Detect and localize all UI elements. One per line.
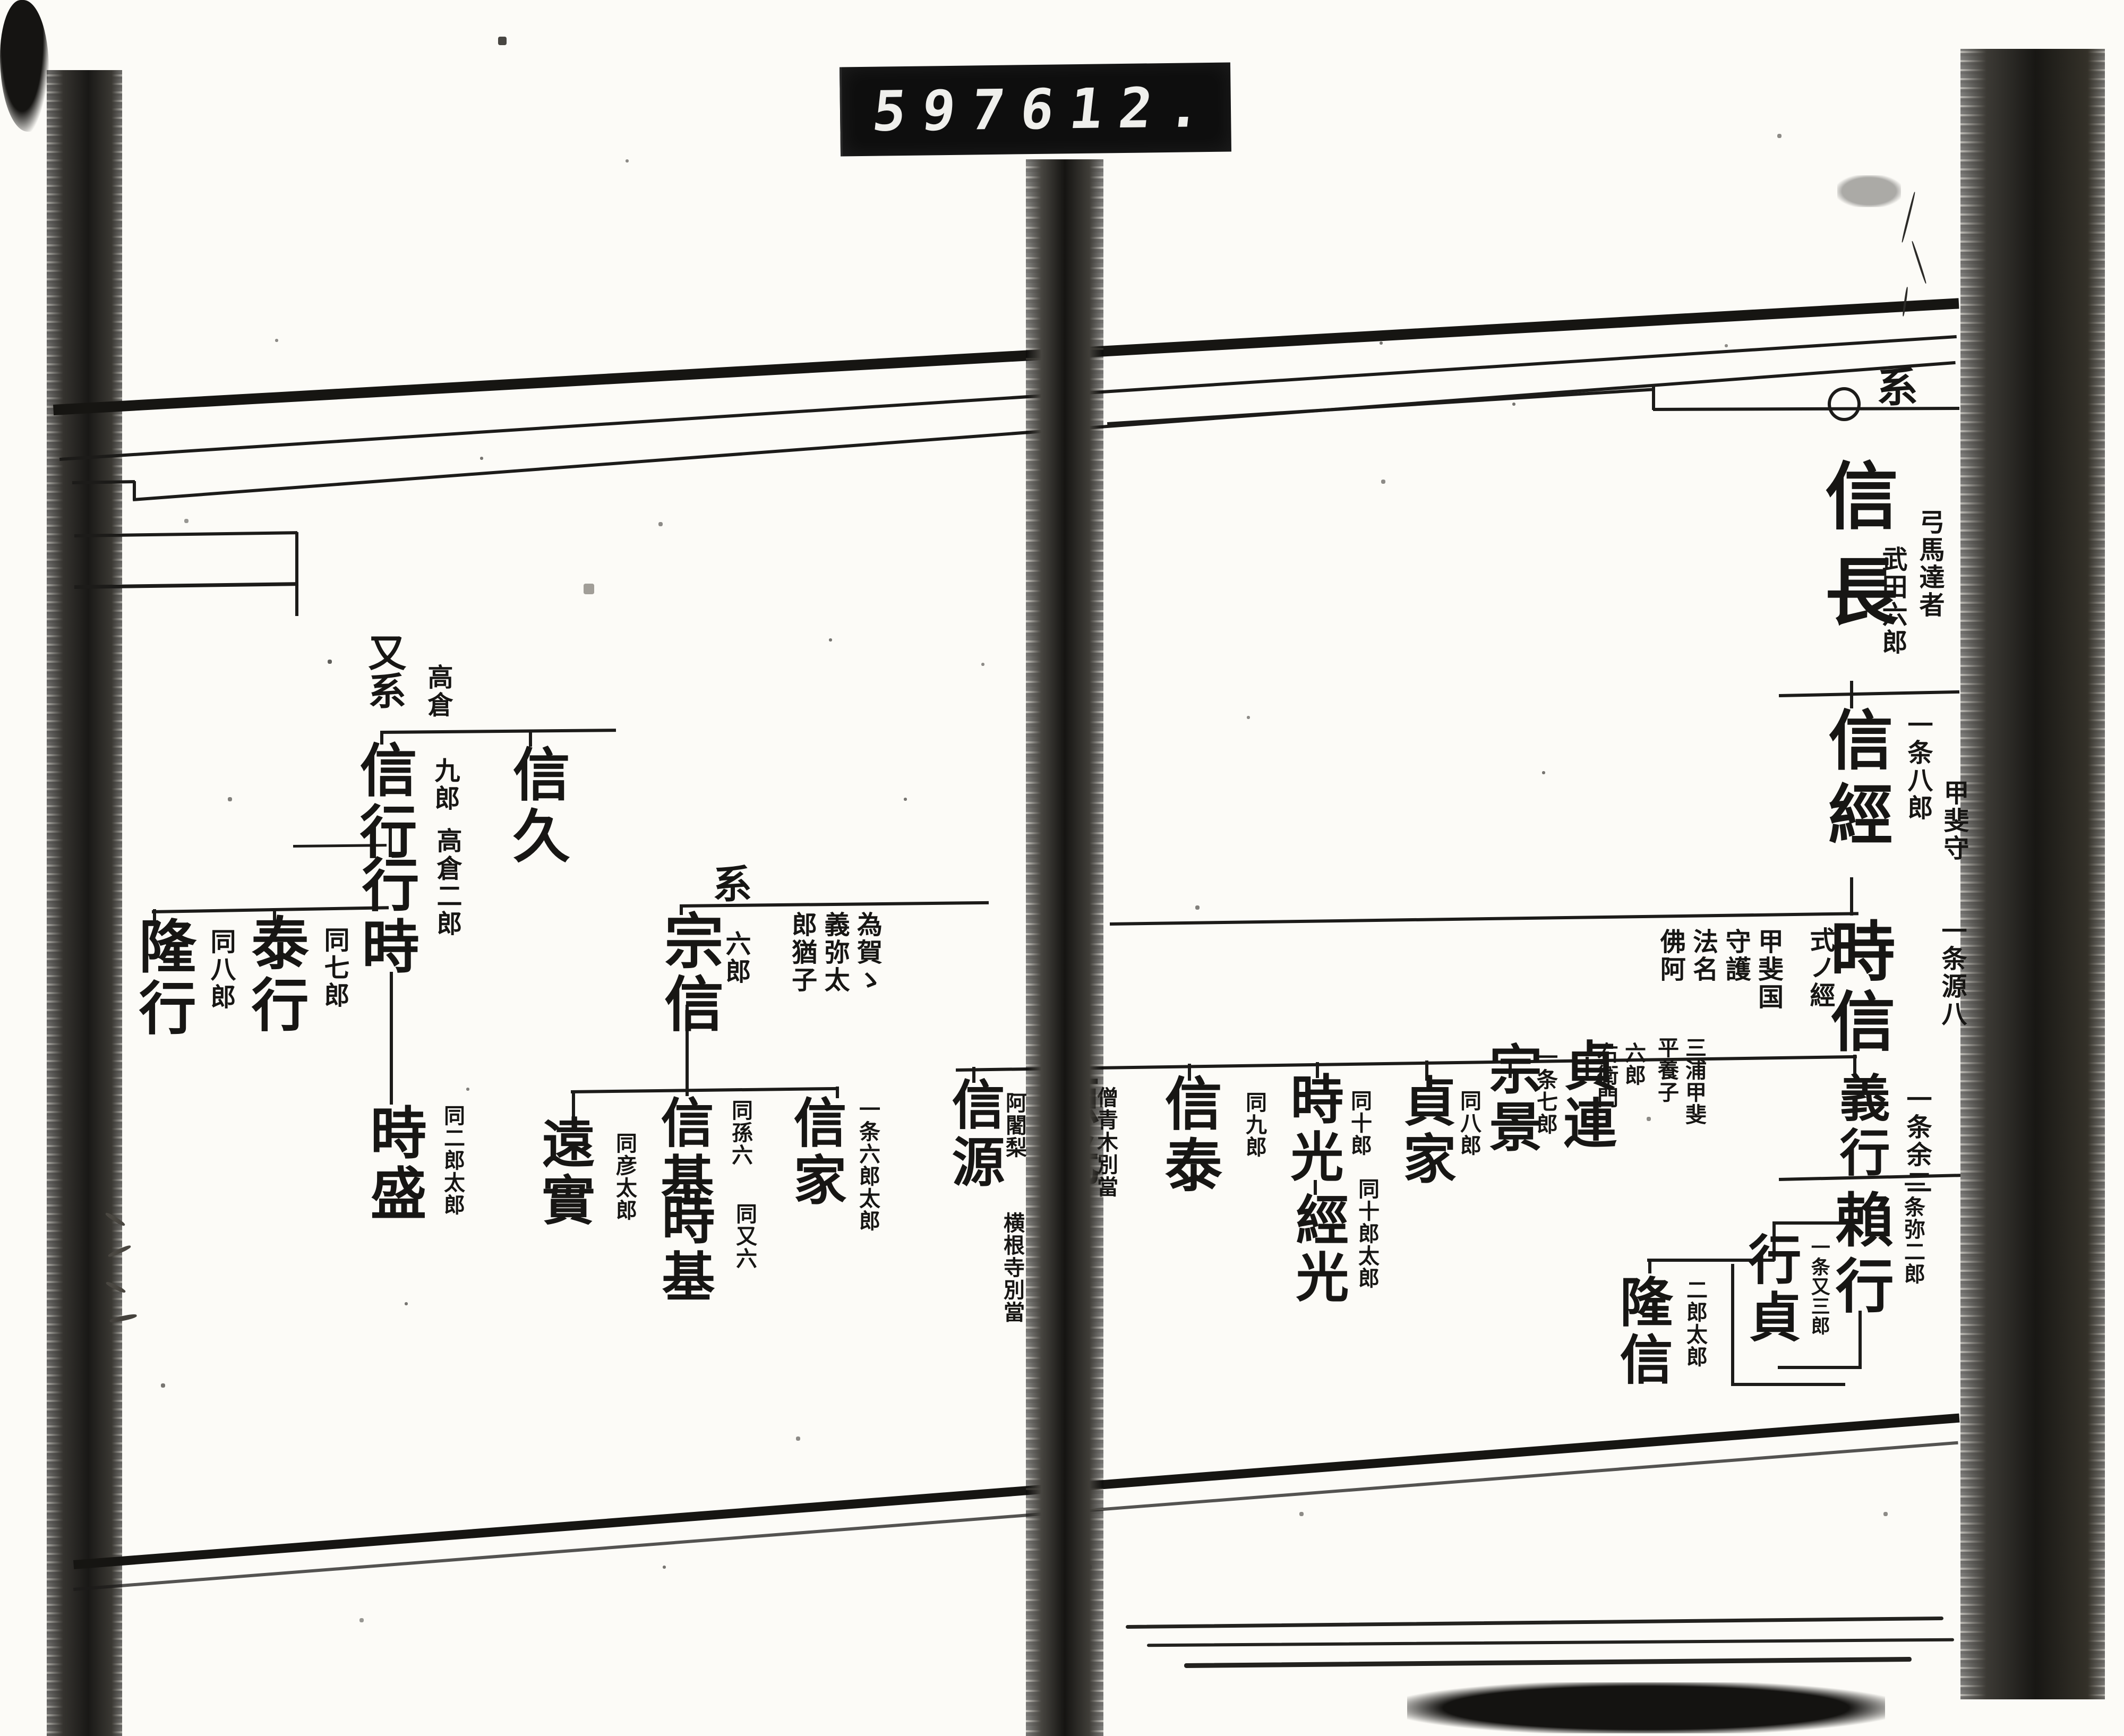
page-edge-streak [1126,1617,1943,1629]
annotation-tokinobu-genpachi: 一条源八 [1935,918,1967,1028]
person-name-yasuyuki: 泰行 [244,913,306,1037]
annotation-takanobu: 二郎太郎 [1681,1279,1709,1368]
annotation-tsunemitsu: 同十郎太郎 [1353,1178,1381,1289]
right-step-line-step [1652,387,1655,410]
book-left-edge-shadow [47,70,122,1736]
person-name-yukisada: 行貞 [1742,1232,1799,1347]
annotation-shingen-ajari: 阿闍梨 [1000,1092,1028,1159]
person-name-nobuhisa: 信久 [506,745,568,868]
annotation-sadatsura-far: 三浦甲斐 平養子 [1650,1037,1708,1126]
person-name-munenobu: 宗信 [656,910,721,1036]
frame-hook-lower [1731,1383,1845,1386]
right-step-line-upper [1107,388,1654,425]
frame-hook-vertical [1731,1264,1734,1385]
person-name-tokimoto: 時基 [655,1192,713,1306]
microfilm-scan: 597 612. 系 信長 弓馬達者 武田六郎 信經 一条八郎 時信 甲斐守 一… [0,0,2124,1736]
bottom-frame-line [73,1414,1960,1569]
page-gutter-shadow [1026,159,1103,1736]
left-step-box-right [295,532,298,585]
lineage-marker-kei2: 系 [707,863,750,903]
left-step-box-tail [295,583,298,616]
faint-smudge [1837,175,1901,207]
annotation-nobuyasu: 同九郎 [1240,1091,1268,1158]
annotation-nobuyuki: 九郎 [428,757,460,813]
annotation-yukitoki: 高倉二郎 [430,827,463,938]
person-name-nobutsune: 信經 [1820,706,1890,855]
annotation-nobutsune: 一条八郎 [1901,712,1933,822]
bottom-frame-echo-line [73,1441,1958,1591]
book-right-edge-shadow [1960,49,2105,1699]
annotation-yasuyuki: 同七郎 [318,927,350,1010]
person-name-takanobu: 隆信 [1613,1275,1671,1389]
person-name-nobuyasu: 信泰 [1158,1074,1220,1197]
annotation-sadatsura-near: 六郎 右衛門 [1594,1042,1647,1109]
takanobu-hanger [1648,1259,1651,1273]
generation-separator-2 [1110,912,1858,926]
annotation-nobumoto: 同孫六 [726,1099,754,1166]
counter-right-digits: 612. [1017,75,1221,142]
ruled-line-3-left [72,480,135,484]
person-name-shingen: 信源 [945,1077,1003,1192]
person-name-tsunemitsu: 經光 [1289,1192,1347,1307]
hanger-tozane [572,1090,575,1117]
gutter-ink-blot [0,0,49,132]
generation-separator-1 [1779,690,1959,697]
person-name-tozane: 遠實 [535,1115,593,1230]
annotation-tokinobu-left-block: 甲斐国 守護 法名 佛阿 [1639,928,1784,1011]
lineage-marker-matakei: 又系 [363,633,405,709]
annotation-nobuie: 一条六郎太郎 [854,1098,881,1232]
bottom-right-ink-blob [1407,1682,1885,1733]
annotation-shingen-yokonedera: 横根寺別當 [998,1212,1026,1323]
annotation-munenobu-rokuro: 六郎 [719,930,751,986]
connector-yukitoki-tokimori [390,972,393,1105]
page-edge-streak [1147,1638,1954,1647]
right-step-line-lower [1653,407,1959,411]
takakura-children-line [380,729,616,734]
annotation-munenobu-adoption: 為賀ゝ 義弥太 郎猶子 [767,911,883,994]
annotation-nobunaga-inner: 武田六郎 [1875,546,1908,656]
person-name-yukitoki: 行時 [355,855,417,978]
annotation-sadaie: 同八郎 [1455,1090,1483,1157]
annotation-tokinobu-kainokami: 甲斐守 [1937,780,1969,862]
annotation-yoriyuki: 一条弥二郎 [1899,1174,1926,1285]
annotation-tozane: 同彦太郎 [611,1132,638,1221]
crease-mark [1911,241,1927,284]
person-name-nobuie: 信家 [787,1095,844,1210]
annotation-tokimori: 同二郎太郎 [439,1105,466,1216]
scan-speckle-noise [0,0,1,1]
annotation-takayuki: 同八郎 [204,928,236,1011]
person-name-yoshiyuki: 義行 [1833,1072,1888,1181]
microfilm-frame-counter: 597 612. [840,63,1231,157]
origin-circle-icon [1828,387,1861,421]
connector-nobutsune-tokinobu [1850,877,1853,916]
person-name-tokimori: 時盛 [363,1104,424,1225]
crease-mark [1901,192,1916,243]
munenobu-children-line [571,1087,839,1093]
annotation-tokimoto: 同又六 [731,1203,758,1270]
person-name-nobuyuki: 信行 [353,740,415,863]
annotation-tokimitsu: 同十郎 [1346,1090,1373,1157]
annotation-munekage: 一条七郎 [1531,1046,1559,1135]
counter-left-digits: 597 [869,77,1024,144]
annotation-tokinobu-left-first: 式ノ經 [1803,927,1836,1010]
lineage-continuation-marker: 系 [1871,365,1916,407]
page-edge-streak [1184,1657,1912,1668]
person-name-tokimitsu: 時光 [1284,1072,1341,1186]
person-name-takayuki: 隆行 [132,917,194,1040]
annotation-yukisada: 一条又三郎 [1806,1237,1831,1336]
annotation-nobunaga-outer: 弓馬達者 [1913,509,1945,619]
person-name-sadaie: 貞家 [1397,1074,1454,1188]
frame-hook-upper [1778,1366,1862,1369]
annotation-takakura: 高倉 [421,664,453,719]
person-name-yoriyuki: 賴行 [1828,1190,1891,1321]
